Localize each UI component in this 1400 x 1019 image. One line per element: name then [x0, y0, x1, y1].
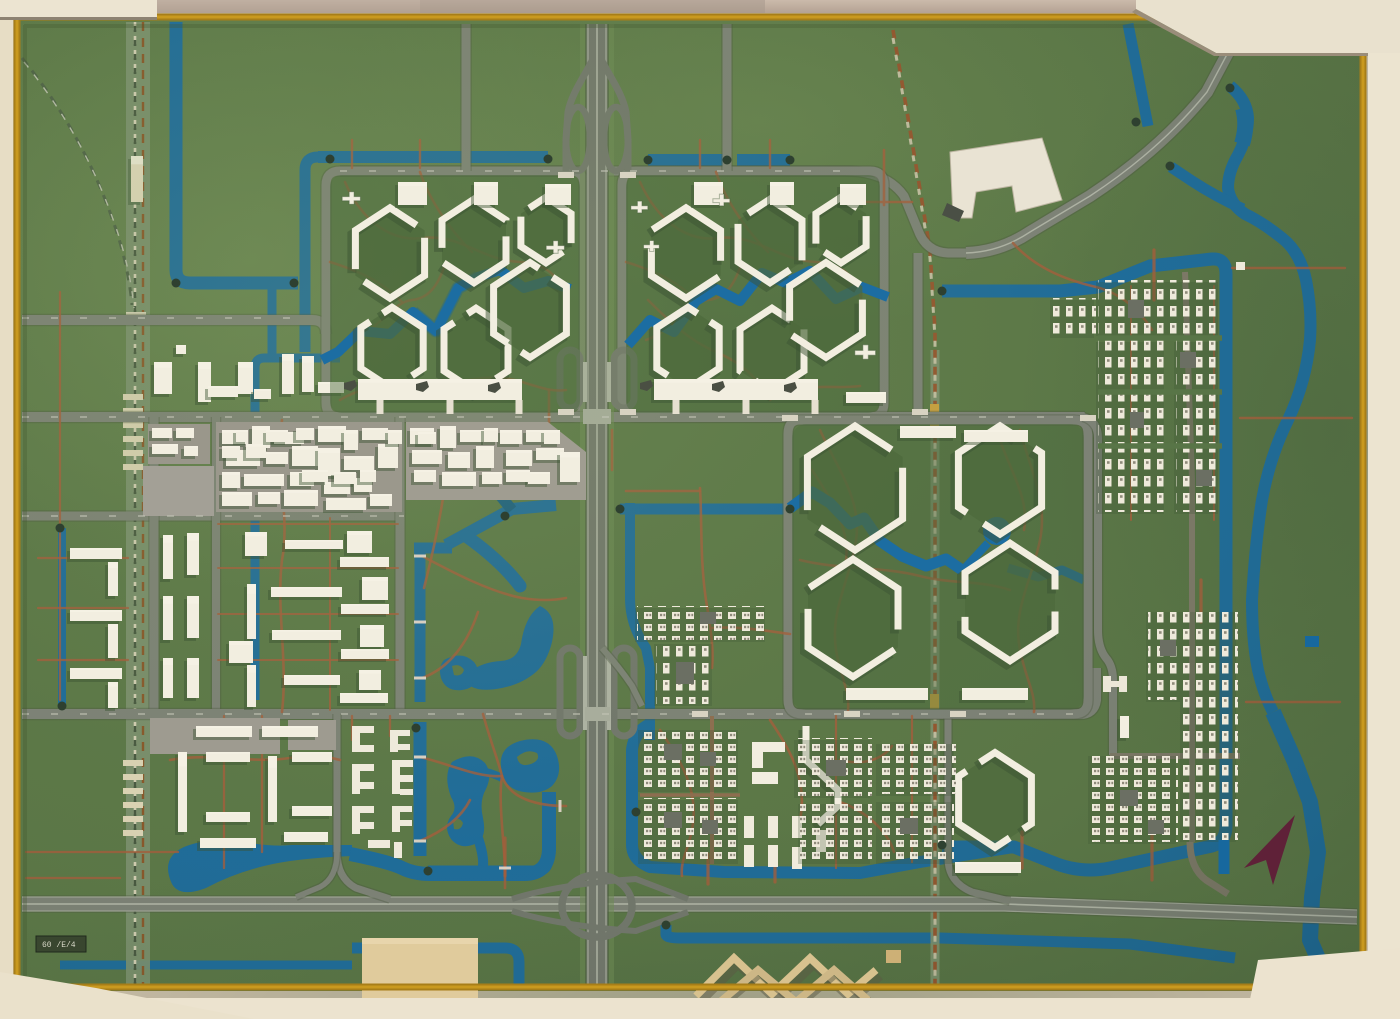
svg-text:60 /E/4: 60 /E/4 [42, 941, 76, 950]
